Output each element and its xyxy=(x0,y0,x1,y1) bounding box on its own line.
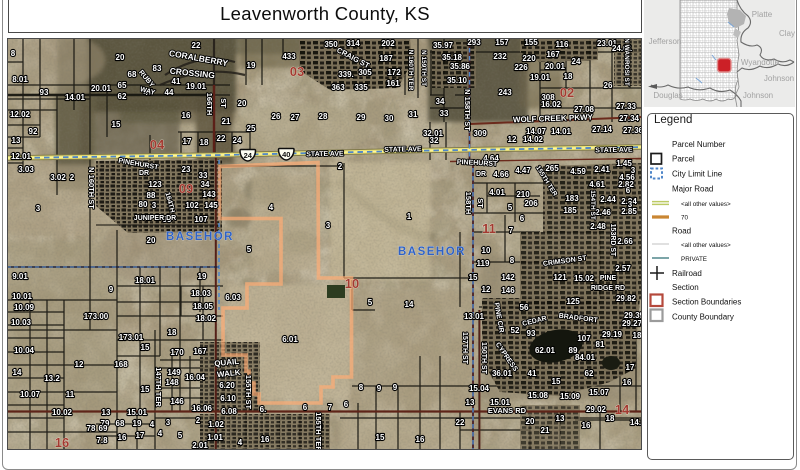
svg-text:168: 168 xyxy=(114,360,128,369)
svg-text:16: 16 xyxy=(182,111,191,120)
svg-text:88: 88 xyxy=(147,191,156,200)
svg-text:Clay: Clay xyxy=(779,29,795,38)
svg-text:3: 3 xyxy=(36,204,41,213)
svg-text:26: 26 xyxy=(604,81,613,90)
svg-text:Railroad: Railroad xyxy=(672,269,702,278)
svg-text:265: 265 xyxy=(545,164,559,173)
svg-text:19: 19 xyxy=(133,419,142,428)
svg-text:158TH: 158TH xyxy=(464,192,473,215)
svg-text:16.06: 16.06 xyxy=(192,404,213,413)
svg-text:Wyandotte: Wyandotte xyxy=(741,58,780,67)
svg-text:PINE: PINE xyxy=(600,275,617,282)
svg-text:29.27: 29.27 xyxy=(622,319,642,328)
svg-text:18.02: 18.02 xyxy=(196,314,217,323)
svg-text:ST: ST xyxy=(476,198,485,208)
svg-text:11: 11 xyxy=(66,390,75,399)
svg-text:14: 14 xyxy=(13,368,22,377)
svg-text:16: 16 xyxy=(582,421,591,430)
svg-text:2.01: 2.01 xyxy=(192,441,208,450)
svg-text:12: 12 xyxy=(482,285,491,294)
svg-text:18: 18 xyxy=(564,72,573,81)
svg-text:146: 146 xyxy=(170,397,184,406)
svg-text:150TH ST: 150TH ST xyxy=(480,342,487,375)
svg-text:33: 33 xyxy=(440,109,449,118)
svg-text:62: 62 xyxy=(585,369,594,378)
svg-text:220: 220 xyxy=(522,54,536,63)
svg-text:6.: 6. xyxy=(260,405,267,414)
svg-text:18: 18 xyxy=(200,138,209,147)
svg-text:24: 24 xyxy=(572,57,581,66)
svg-text:17: 17 xyxy=(626,363,635,372)
svg-text:44: 44 xyxy=(165,88,174,97)
svg-text:93: 93 xyxy=(527,329,536,338)
svg-text:70: 70 xyxy=(681,214,689,221)
svg-text:102: 102 xyxy=(185,201,199,210)
svg-text:166TH: 166TH xyxy=(205,93,214,116)
svg-text:93: 93 xyxy=(40,88,49,97)
svg-text:10.04: 10.04 xyxy=(14,346,35,355)
svg-text:4: 4 xyxy=(158,429,163,438)
svg-text:187: 187 xyxy=(379,54,393,63)
svg-text:15: 15 xyxy=(112,120,121,129)
svg-text:04: 04 xyxy=(150,137,165,152)
svg-text:18.05: 18.05 xyxy=(193,302,214,311)
svg-text:03: 03 xyxy=(290,64,304,79)
svg-text:15: 15 xyxy=(376,433,385,442)
svg-text:13.01: 13.01 xyxy=(464,312,485,321)
svg-text:7: 7 xyxy=(509,226,514,235)
svg-text:145: 145 xyxy=(204,201,218,210)
svg-text:6.08: 6.08 xyxy=(221,407,237,416)
svg-text:14.02: 14.02 xyxy=(523,135,544,144)
svg-text:29.19: 29.19 xyxy=(602,330,623,339)
svg-text:3: 3 xyxy=(628,200,633,209)
svg-text:11: 11 xyxy=(482,221,496,236)
svg-text:2: 2 xyxy=(196,416,201,425)
svg-text:3: 3 xyxy=(326,221,331,230)
svg-text:2: 2 xyxy=(70,173,75,182)
svg-text:22: 22 xyxy=(217,134,226,143)
svg-text:8: 8 xyxy=(11,49,16,58)
svg-text:14.02: 14.02 xyxy=(630,418,642,427)
svg-text:16: 16 xyxy=(261,435,270,444)
svg-text:56: 56 xyxy=(520,303,529,312)
svg-text:19.01: 19.01 xyxy=(186,82,207,91)
svg-text:N 158TH ST: N 158TH ST xyxy=(463,89,472,131)
svg-text:EVANS RD: EVANS RD xyxy=(488,406,527,415)
svg-text:433: 433 xyxy=(282,52,296,61)
svg-text:78: 78 xyxy=(87,424,96,433)
svg-text:1.45: 1.45 xyxy=(616,159,632,168)
svg-text:4.56: 4.56 xyxy=(619,173,635,182)
svg-text:65: 65 xyxy=(118,81,127,90)
svg-text:3: 3 xyxy=(152,201,157,210)
svg-text:155TH ST: 155TH ST xyxy=(244,375,253,410)
svg-text:16.02: 16.02 xyxy=(541,100,562,109)
svg-text:148: 148 xyxy=(165,378,179,387)
svg-text:4.59: 4.59 xyxy=(570,167,586,176)
svg-text:15.02: 15.02 xyxy=(574,274,595,283)
svg-text:41: 41 xyxy=(172,77,181,86)
svg-text:County Boundary: County Boundary xyxy=(672,312,734,321)
svg-text:26: 26 xyxy=(272,112,281,121)
svg-text:8: 8 xyxy=(359,383,364,392)
svg-text:N WANROSI ST: N WANROSI ST xyxy=(623,38,630,86)
svg-text:335: 335 xyxy=(354,83,368,92)
svg-text:2.66: 2.66 xyxy=(617,237,633,246)
svg-text:68: 68 xyxy=(128,70,137,79)
svg-text:119: 119 xyxy=(477,259,490,268)
svg-text:41: 41 xyxy=(528,369,537,378)
svg-text:84.01: 84.01 xyxy=(575,353,596,362)
svg-text:4.66: 4.66 xyxy=(493,170,509,179)
svg-text:6.10: 6.10 xyxy=(220,394,236,403)
svg-text:19.01: 19.01 xyxy=(530,73,551,82)
svg-text:12.02: 12.02 xyxy=(10,110,31,119)
svg-text:18: 18 xyxy=(633,331,642,340)
svg-text:1.01: 1.01 xyxy=(207,433,223,442)
svg-text:14.07: 14.07 xyxy=(526,127,547,136)
svg-text:173.01: 173.01 xyxy=(119,333,144,342)
svg-text:157TH ST: 157TH ST xyxy=(461,332,468,365)
svg-text:20.01: 20.01 xyxy=(545,62,566,71)
svg-text:3.02: 3.02 xyxy=(50,173,66,182)
svg-text:10.01: 10.01 xyxy=(12,292,33,301)
svg-text:2.57: 2.57 xyxy=(615,264,631,273)
svg-text:BASEHOR: BASEHOR xyxy=(398,246,466,258)
svg-text:02: 02 xyxy=(560,85,574,100)
svg-text:6.03: 6.03 xyxy=(225,293,241,302)
svg-text:309: 309 xyxy=(473,129,487,138)
svg-text:15: 15 xyxy=(141,343,150,352)
svg-text:363: 363 xyxy=(331,83,345,92)
svg-text:14.01: 14.01 xyxy=(65,93,86,102)
svg-text:4.01: 4.01 xyxy=(489,188,505,197)
svg-text:121: 121 xyxy=(553,273,567,282)
svg-text:18.01: 18.01 xyxy=(135,276,156,285)
svg-text:206: 206 xyxy=(524,199,538,208)
svg-text:28: 28 xyxy=(319,112,328,121)
svg-text:167: 167 xyxy=(546,50,560,59)
svg-text:107: 107 xyxy=(577,334,591,343)
svg-text:83: 83 xyxy=(153,64,162,73)
svg-text:6: 6 xyxy=(344,400,349,409)
svg-text:147TH TER: 147TH TER xyxy=(154,367,163,407)
svg-text:10: 10 xyxy=(482,246,491,255)
svg-text:City Limit Line: City Limit Line xyxy=(672,169,723,178)
svg-text:Major Road: Major Road xyxy=(672,184,713,193)
svg-text:DR: DR xyxy=(139,170,149,177)
svg-text:9.01: 9.01 xyxy=(12,272,28,281)
svg-text:9: 9 xyxy=(393,383,398,392)
svg-text:<all other values>: <all other values> xyxy=(681,201,731,208)
svg-text:10: 10 xyxy=(345,276,359,291)
svg-text:23: 23 xyxy=(182,165,191,174)
svg-text:20: 20 xyxy=(147,236,156,245)
svg-text:123: 123 xyxy=(148,180,162,189)
svg-text:6: 6 xyxy=(626,186,631,195)
svg-text:27.34: 27.34 xyxy=(619,114,640,123)
svg-text:Road: Road xyxy=(672,226,691,235)
svg-text:N 160TH ST: N 160TH ST xyxy=(87,167,96,209)
svg-text:185: 185 xyxy=(563,206,577,215)
svg-text:35.97: 35.97 xyxy=(433,41,454,50)
svg-text:2.48: 2.48 xyxy=(590,222,606,231)
svg-text:09: 09 xyxy=(179,181,193,196)
svg-text:21: 21 xyxy=(222,117,231,126)
svg-text:BASEHOR: BASEHOR xyxy=(166,231,234,243)
svg-text:JUNIPER DR: JUNIPER DR xyxy=(134,215,176,222)
svg-text:81: 81 xyxy=(596,340,605,349)
svg-text:40: 40 xyxy=(282,150,290,159)
svg-text:107: 107 xyxy=(194,215,208,224)
svg-text:ST: ST xyxy=(219,98,228,108)
svg-text:12.01: 12.01 xyxy=(11,152,32,161)
svg-text:35.18: 35.18 xyxy=(442,53,463,62)
svg-text:62: 62 xyxy=(118,92,127,101)
svg-text:2: 2 xyxy=(338,162,343,171)
svg-text:13: 13 xyxy=(466,398,475,407)
svg-text:24: 24 xyxy=(233,136,242,145)
svg-text:29.02: 29.02 xyxy=(586,405,607,414)
svg-text:10.03: 10.03 xyxy=(11,318,32,327)
svg-text:350: 350 xyxy=(324,40,338,49)
svg-text:8.01: 8.01 xyxy=(12,75,28,84)
svg-text:13: 13 xyxy=(556,414,565,423)
svg-text:125: 125 xyxy=(566,297,580,306)
svg-text:4: 4 xyxy=(269,203,274,212)
svg-text:19: 19 xyxy=(247,61,256,70)
svg-text:2.44: 2.44 xyxy=(600,195,616,204)
svg-text:92: 92 xyxy=(29,127,38,136)
svg-text:15: 15 xyxy=(141,385,150,394)
svg-text:161: 161 xyxy=(386,79,400,88)
svg-text:116: 116 xyxy=(556,40,569,49)
svg-text:Section: Section xyxy=(672,283,699,292)
svg-text:<all other values>: <all other values> xyxy=(681,242,731,249)
svg-text:20: 20 xyxy=(116,53,125,62)
svg-text:15.01: 15.01 xyxy=(127,408,148,417)
svg-text:10.09: 10.09 xyxy=(14,303,35,312)
svg-text:16: 16 xyxy=(416,435,425,444)
svg-text:15: 15 xyxy=(469,273,478,282)
svg-text:16: 16 xyxy=(118,433,127,442)
svg-text:35.86: 35.86 xyxy=(450,62,471,71)
svg-text:20.01: 20.01 xyxy=(91,84,112,93)
svg-text:17: 17 xyxy=(183,137,192,146)
svg-text:22: 22 xyxy=(456,418,465,427)
svg-text:13: 13 xyxy=(12,136,21,145)
svg-text:293: 293 xyxy=(467,38,481,47)
svg-text:35.10: 35.10 xyxy=(447,76,468,85)
svg-text:RIDGE RD: RIDGE RD xyxy=(591,285,625,292)
svg-text:STATE AVE: STATE AVE xyxy=(384,146,422,154)
svg-text:24: 24 xyxy=(244,151,253,160)
svg-text:22: 22 xyxy=(192,41,201,50)
svg-text:5: 5 xyxy=(368,298,373,307)
svg-text:31: 31 xyxy=(409,110,418,119)
svg-text:305: 305 xyxy=(358,68,372,77)
svg-text:N 159TH ST: N 159TH ST xyxy=(420,50,427,86)
svg-text:4: 4 xyxy=(150,420,155,429)
svg-text:15.04: 15.04 xyxy=(469,384,490,393)
svg-text:7: 7 xyxy=(328,403,333,412)
svg-text:183: 183 xyxy=(565,194,579,203)
svg-text:18: 18 xyxy=(168,328,177,337)
svg-text:8: 8 xyxy=(510,256,515,265)
svg-text:226: 226 xyxy=(514,63,528,72)
svg-text:157: 157 xyxy=(495,38,509,47)
svg-text:1.02: 1.02 xyxy=(208,420,224,429)
svg-text:10.07: 10.07 xyxy=(20,390,41,399)
svg-text:15.07: 15.07 xyxy=(589,388,610,397)
svg-text:PRIVATE: PRIVATE xyxy=(681,256,707,263)
svg-text:Platte: Platte xyxy=(752,10,773,19)
svg-text:146: 146 xyxy=(501,286,515,295)
svg-text:Johnson: Johnson xyxy=(764,74,794,83)
svg-text:Parcel Number: Parcel Number xyxy=(672,140,726,149)
svg-text:STATE AVE: STATE AVE xyxy=(306,151,344,159)
svg-text:20: 20 xyxy=(238,99,247,108)
svg-text:N 160TH TER: N 160TH TER xyxy=(407,50,414,91)
svg-text:15.09: 15.09 xyxy=(560,392,581,401)
svg-text:155TH TER: 155TH TER xyxy=(314,412,323,450)
svg-text:5: 5 xyxy=(508,203,513,212)
svg-text:12: 12 xyxy=(508,135,517,144)
svg-text:10.02: 10.02 xyxy=(52,408,73,417)
svg-text:1: 1 xyxy=(407,212,412,221)
svg-text:170: 170 xyxy=(170,348,184,357)
svg-text:13.2: 13.2 xyxy=(44,374,60,383)
svg-text:172: 172 xyxy=(387,68,401,77)
svg-text:15: 15 xyxy=(552,377,561,386)
svg-text:2.41: 2.41 xyxy=(594,165,610,174)
svg-text:143: 143 xyxy=(202,190,216,199)
svg-text:14.01: 14.01 xyxy=(551,127,572,136)
svg-text:17: 17 xyxy=(136,431,145,440)
svg-text:30: 30 xyxy=(385,114,394,123)
svg-text:314: 314 xyxy=(346,39,360,48)
svg-text:19: 19 xyxy=(198,272,207,281)
svg-text:9: 9 xyxy=(109,285,114,294)
svg-text:Douglas: Douglas xyxy=(653,91,682,100)
svg-text:12: 12 xyxy=(75,360,84,369)
svg-text:232: 232 xyxy=(493,52,507,61)
svg-text:21: 21 xyxy=(541,426,550,435)
svg-text:34: 34 xyxy=(436,97,445,106)
svg-text:80: 80 xyxy=(139,200,148,209)
svg-text:339.: 339. xyxy=(338,70,354,79)
svg-text:69: 69 xyxy=(99,424,108,433)
svg-text:14: 14 xyxy=(615,402,630,417)
svg-text:5: 5 xyxy=(178,431,183,440)
svg-text:DR: DR xyxy=(476,171,486,178)
svg-text:6: 6 xyxy=(520,214,525,223)
svg-text:13: 13 xyxy=(102,408,111,417)
svg-text:25: 25 xyxy=(247,124,256,133)
svg-text:18.03: 18.03 xyxy=(191,289,212,298)
svg-text:Parcel: Parcel xyxy=(672,154,695,163)
svg-text:29: 29 xyxy=(357,113,366,122)
svg-text:Section Boundaries: Section Boundaries xyxy=(672,297,741,306)
svg-text:173.00: 173.00 xyxy=(84,312,109,321)
svg-text:149: 149 xyxy=(167,368,181,377)
svg-text:16.04: 16.04 xyxy=(185,373,206,382)
svg-text:32: 32 xyxy=(430,136,439,145)
svg-text:202: 202 xyxy=(381,39,395,48)
svg-text:4: 4 xyxy=(238,438,243,447)
svg-text:15.08: 15.08 xyxy=(528,391,549,400)
svg-text:33: 33 xyxy=(199,171,208,180)
svg-text:14: 14 xyxy=(405,300,414,309)
svg-text:16: 16 xyxy=(623,378,632,387)
svg-text:167: 167 xyxy=(193,347,207,356)
svg-text:62.01: 62.01 xyxy=(535,346,556,355)
svg-text:27: 27 xyxy=(291,113,300,122)
svg-text:68: 68 xyxy=(116,419,125,428)
svg-text:52: 52 xyxy=(511,326,520,335)
svg-text:29.82: 29.82 xyxy=(616,294,637,303)
svg-text:155: 155 xyxy=(524,38,538,47)
svg-text:4.47: 4.47 xyxy=(515,166,531,175)
svg-text:STATE AVE: STATE AVE xyxy=(595,147,633,155)
svg-text:153RD ST: 153RD ST xyxy=(609,224,616,257)
svg-text:243: 243 xyxy=(498,88,512,97)
svg-text:210: 210 xyxy=(516,190,530,199)
svg-text:34: 34 xyxy=(201,180,210,189)
svg-text:2.46: 2.46 xyxy=(595,208,611,217)
svg-text:27.36: 27.36 xyxy=(623,126,642,135)
svg-text:Johnson: Johnson xyxy=(743,91,773,100)
svg-text:20: 20 xyxy=(526,417,535,426)
svg-text:6.01: 6.01 xyxy=(282,335,298,344)
svg-text:6: 6 xyxy=(303,403,308,412)
svg-text:142: 142 xyxy=(501,273,515,282)
svg-text:6.20: 6.20 xyxy=(219,381,235,390)
svg-text:16: 16 xyxy=(55,435,69,450)
svg-text:Jefferson: Jefferson xyxy=(649,37,682,46)
svg-text:18: 18 xyxy=(606,414,615,423)
svg-text:154TH ST: 154TH ST xyxy=(589,190,596,220)
svg-text:36.01: 36.01 xyxy=(492,369,513,378)
svg-text:3.03: 3.03 xyxy=(18,165,34,174)
svg-text:4.61: 4.61 xyxy=(589,180,605,189)
svg-text:5: 5 xyxy=(247,245,252,254)
svg-text:27.33: 27.33 xyxy=(616,102,637,111)
svg-text:7.8: 7.8 xyxy=(96,436,108,445)
svg-text:9: 9 xyxy=(377,384,382,393)
svg-text:27.14: 27.14 xyxy=(592,125,613,134)
svg-text:3: 3 xyxy=(166,418,171,427)
